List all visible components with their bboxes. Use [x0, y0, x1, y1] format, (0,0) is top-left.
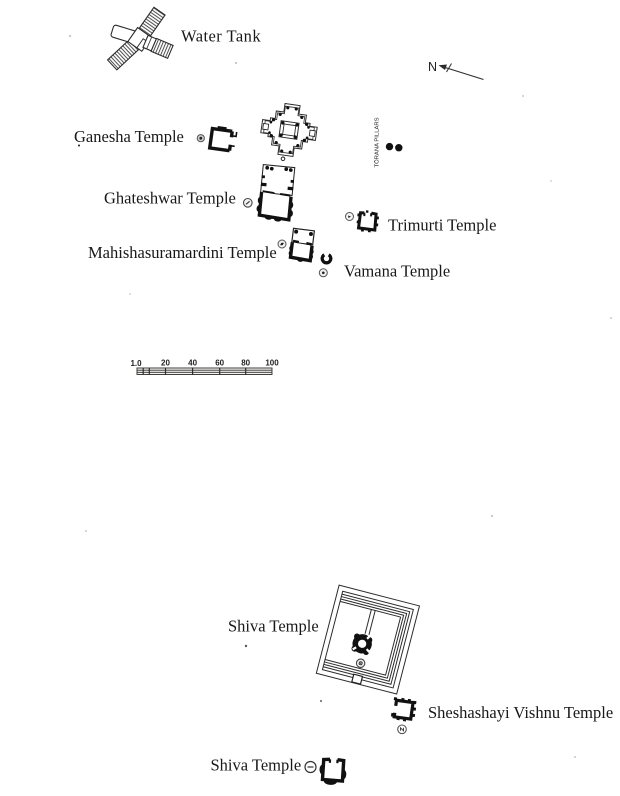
svg-text:Ganesha Temple: Ganesha Temple — [74, 127, 184, 146]
svg-text:Trimurti Temple: Trimurti Temple — [388, 216, 496, 235]
svg-text:60: 60 — [215, 359, 224, 368]
svg-text:Sheshashayi Vishnu Temple: Sheshashayi Vishnu Temple — [428, 703, 613, 722]
svg-text:40: 40 — [188, 359, 197, 368]
svg-text:Ghateshwar Temple: Ghateshwar Temple — [104, 189, 236, 208]
svg-text:Shiva Temple: Shiva Temple — [211, 756, 302, 775]
svg-text:TŌRANA PILLARS: TŌRANA PILLARS — [374, 117, 381, 167]
svg-text:1.0: 1.0 — [130, 359, 142, 368]
svg-text:80: 80 — [241, 359, 250, 368]
svg-text:Water Tank: Water Tank — [181, 27, 261, 46]
svg-text:N: N — [428, 60, 437, 74]
svg-text:Mahishasuramardini Temple: Mahishasuramardini Temple — [88, 243, 277, 262]
svg-text:20: 20 — [161, 359, 170, 368]
svg-text:100: 100 — [265, 359, 279, 368]
svg-text:Shiva Temple: Shiva Temple — [228, 617, 319, 636]
svg-text:Vamana Temple: Vamana Temple — [344, 262, 450, 281]
